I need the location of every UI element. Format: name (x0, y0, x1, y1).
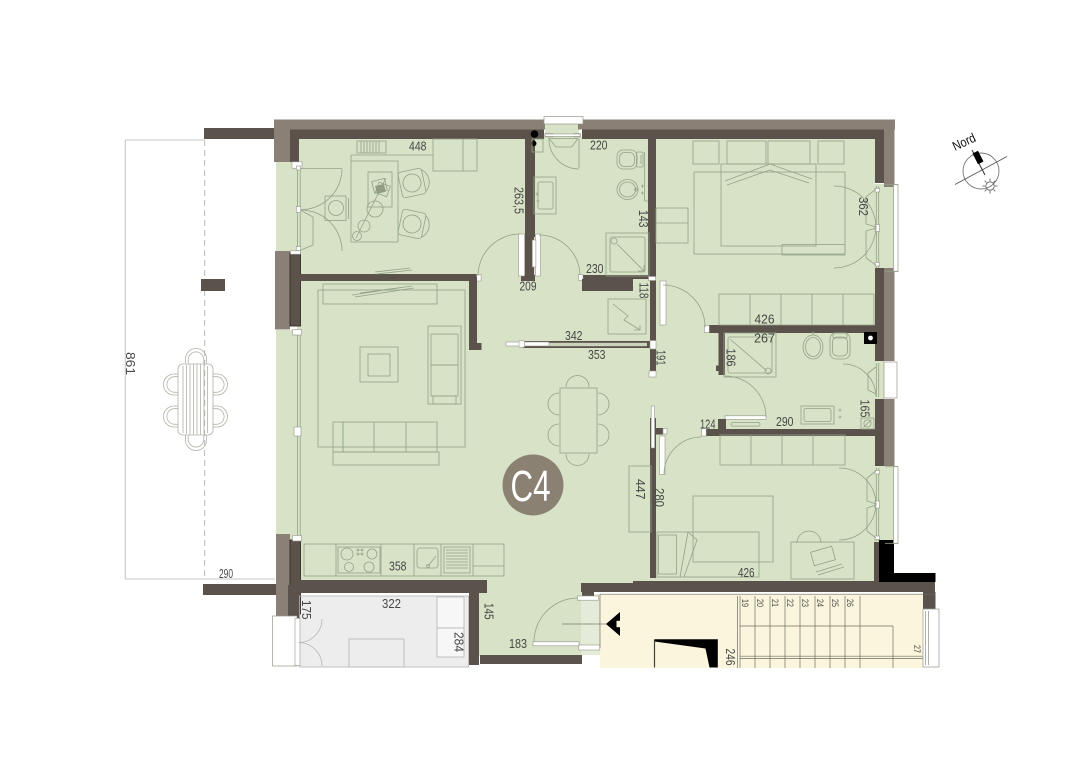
svg-text:183: 183 (509, 637, 527, 651)
svg-text:21: 21 (769, 599, 780, 607)
svg-text:143: 143 (636, 210, 650, 228)
svg-text:426: 426 (738, 566, 755, 580)
svg-text:118: 118 (637, 283, 651, 299)
svg-text:220: 220 (590, 139, 608, 153)
svg-text:448: 448 (409, 140, 427, 154)
svg-text:209: 209 (520, 280, 537, 294)
svg-text:175: 175 (299, 600, 313, 620)
svg-text:145: 145 (482, 603, 496, 620)
svg-text:353: 353 (588, 348, 606, 362)
svg-text:290: 290 (219, 567, 233, 581)
svg-text:230: 230 (586, 262, 604, 276)
svg-text:263,5: 263,5 (512, 187, 526, 214)
svg-text:447: 447 (633, 479, 647, 500)
svg-text:191: 191 (654, 350, 668, 366)
svg-text:23: 23 (799, 599, 810, 607)
svg-text:26: 26 (844, 599, 855, 607)
svg-text:358: 358 (389, 560, 407, 574)
svg-text:124: 124 (700, 418, 716, 432)
svg-text:342: 342 (565, 329, 583, 343)
svg-text:267: 267 (754, 332, 775, 346)
svg-text:426: 426 (755, 313, 775, 327)
svg-text:27: 27 (911, 645, 922, 653)
svg-text:165: 165 (858, 400, 872, 418)
svg-text:280: 280 (652, 488, 666, 507)
svg-text:20: 20 (754, 599, 765, 607)
svg-text:284: 284 (452, 632, 466, 652)
svg-text:25: 25 (829, 599, 840, 607)
svg-text:322: 322 (382, 597, 401, 611)
svg-text:290: 290 (776, 415, 794, 429)
svg-text:C4: C4 (511, 463, 551, 511)
svg-text:861: 861 (123, 352, 137, 375)
svg-text:362: 362 (856, 197, 870, 216)
svg-text:24: 24 (814, 599, 825, 607)
svg-text:22: 22 (784, 599, 795, 607)
svg-text:19: 19 (739, 599, 750, 607)
svg-text:186: 186 (724, 349, 738, 367)
svg-text:246: 246 (723, 649, 737, 666)
